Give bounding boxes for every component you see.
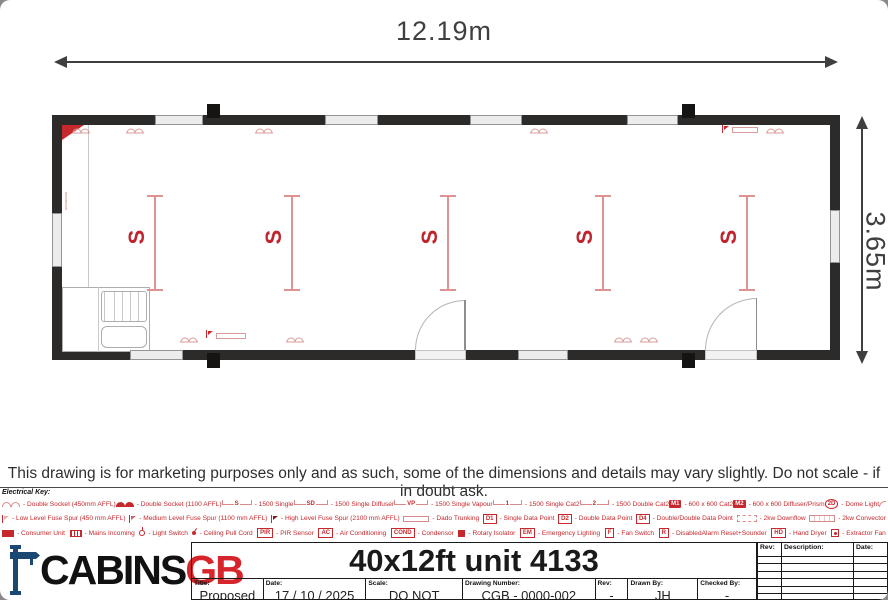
rev-cell — [782, 572, 854, 578]
key-item: S- 1500 Single — [222, 501, 294, 508]
key-item: - Outside Light — [879, 501, 886, 508]
field-rev: Rev:- — [596, 579, 629, 600]
field-date: Date:17 / 10 / 2025 — [264, 579, 367, 600]
key-item: - Medium Level Fuse Spur (1100 mm AFFL) — [129, 515, 267, 523]
drawing-sheet: 12.19m 3.65m SS — [0, 0, 888, 600]
fuse-low-icon — [2, 515, 9, 523]
double-socket-symbol — [640, 335, 658, 343]
field-value: - — [700, 588, 754, 600]
double-socket-symbol — [59, 192, 67, 210]
door-leaf — [756, 298, 758, 350]
fluorescent-light-line — [595, 195, 611, 197]
rev-empty-row — [758, 572, 887, 579]
dado-trunking-symbol — [732, 127, 758, 133]
double-socket-symbol — [614, 335, 632, 343]
key-item-label: - Condensor — [418, 530, 454, 537]
fluorescent-light-label: S — [716, 224, 742, 250]
arrow-down-icon — [856, 351, 868, 364]
revision-table: Rev:Description:Date: — [757, 542, 888, 600]
double-socket-symbol — [126, 126, 144, 134]
rev-empty-row — [758, 557, 887, 564]
key-item: D2- Double Data Point — [558, 514, 632, 524]
sink-drainer — [101, 291, 147, 322]
rev-cell — [758, 572, 782, 578]
field-value: JH — [630, 588, 695, 600]
pull-cord-icon — [192, 531, 196, 535]
window — [52, 213, 62, 267]
rotary-icon — [458, 530, 465, 537]
box-outline-icon: D2 — [558, 514, 572, 524]
rev-cell — [758, 579, 782, 585]
arrow-up-icon — [856, 116, 868, 129]
fluorescent-light-line — [447, 196, 449, 290]
consumer-unit-icon — [2, 530, 14, 537]
fluorescent-light-line — [284, 195, 300, 197]
key-item-label: - Double Socket (450mm AFFL) — [23, 501, 116, 508]
key-item-label: - Fan Switch — [617, 530, 654, 537]
fluorescent-light-line — [147, 289, 163, 291]
key-item-label: - Dado Trunking — [432, 515, 479, 522]
double-socket-symbol — [766, 126, 784, 134]
key-item-label: - Double Socket (1100 AFFL) — [137, 501, 222, 508]
key-item: - Mains Incoming — [70, 530, 135, 537]
module-joint — [207, 104, 220, 118]
key-item-label: - 2kw Downflow — [760, 515, 806, 522]
convector-icon — [809, 515, 835, 522]
window — [325, 115, 378, 125]
key-item-label: - PIR Sensor — [276, 530, 314, 537]
window — [627, 115, 678, 125]
key-item: - Light Switch — [139, 530, 188, 537]
field-label: Checked By: — [700, 580, 754, 587]
mains-icon — [70, 530, 82, 537]
rev-cell — [758, 587, 782, 593]
sink — [101, 326, 147, 348]
width-dimension-line — [57, 61, 835, 63]
key-item-label: - Consumer Unit — [17, 530, 65, 537]
title-block-fields: Title:Proposed LayoutDate:17 / 10 / 2025… — [192, 578, 756, 600]
luminaire-icon: 2 — [580, 501, 609, 507]
window — [155, 115, 203, 125]
module-joint — [682, 353, 695, 368]
key-item: - Double Socket (1100 AFFL) — [116, 501, 222, 508]
key-item-label: - 600 x 600 Cat2 — [684, 501, 733, 508]
key-item: PIR- PIR Sensor — [257, 528, 314, 538]
key-item-label: - Dome Light — [841, 501, 879, 508]
kitchen-worktop-edge — [88, 125, 89, 287]
trunking-icon — [403, 516, 429, 522]
key-item: D4- Double/Double Data Point — [636, 514, 733, 524]
cabinsgb-logo-icon — [10, 545, 40, 595]
key-item: - High Level Fuse Spur (2100 mm AFFL) — [271, 515, 400, 523]
key-item: D1- Single Data Point — [483, 514, 555, 524]
key-item: - Low Level Fuse Spur (450 mm AFFL) — [2, 515, 126, 523]
key-item: R- DisabledAlarm Reset+Sounder — [659, 528, 767, 538]
key-item: AC- Air Conditioning — [318, 528, 386, 538]
fluorescent-light-line — [746, 196, 748, 290]
key-item-label: - Medium Level Fuse Spur (1100 mm AFFL) — [139, 515, 267, 522]
field-drawingnumber: Drawing Number:CGB - 0000-002 — [463, 579, 596, 600]
rev-empty-row — [758, 579, 887, 586]
light-switch-icon — [139, 530, 145, 536]
key-item-label: - Low Level Fuse Spur (450 mm AFFL) — [12, 515, 126, 522]
box-outline-icon: D1 — [483, 514, 497, 524]
key-item: - Consumer Unit — [2, 530, 65, 537]
window — [518, 350, 568, 360]
key-item-label: - Emergency Lighting — [538, 530, 600, 537]
title-block: 40x12ft unit 4133 Title:Proposed LayoutD… — [191, 542, 757, 600]
key-item-label: - Air Conditioning — [336, 530, 386, 537]
double-socket-symbol — [530, 126, 548, 134]
field-title: Title:Proposed Layout — [192, 579, 264, 600]
key-item-label: - DisabledAlarm Reset+Sounder — [672, 530, 767, 537]
field-value: Proposed Layout — [194, 588, 261, 600]
key-item-label: - 1500 Single Vapour — [431, 501, 492, 508]
key-item: - Ceiling Pull Cord — [192, 530, 252, 537]
box-outline-icon: AC — [318, 528, 333, 538]
key-item: - Dado Trunking — [403, 515, 479, 522]
arrow-right-icon — [825, 56, 838, 68]
window — [470, 115, 522, 125]
key-item: HD- Hand Dryer — [771, 528, 826, 538]
key-item: F- Fan Switch — [605, 528, 654, 538]
rev-cell — [854, 557, 886, 563]
fluorescent-light-line — [291, 196, 293, 290]
field-drawnby: Drawn By:JH — [628, 579, 698, 600]
fluorescent-light-line — [739, 195, 755, 197]
extractor-icon — [831, 529, 839, 537]
fluorescent-light-label: S — [572, 224, 598, 250]
window — [130, 350, 183, 360]
field-label: Drawing Number: — [465, 580, 593, 587]
key-item-label: - Ceiling Pull Cord — [199, 530, 252, 537]
electrical-key: Electrical Key: - Double Socket (450mm A… — [0, 487, 888, 542]
door-leaf — [464, 300, 466, 350]
rev-header-date: Date: — [854, 543, 886, 556]
box-outline-icon: EM — [520, 528, 535, 538]
field-value: CGB - 0000-002 — [465, 588, 593, 600]
electrical-key-row-3: - Consumer Unit- Mains Incoming- Light S… — [2, 526, 886, 541]
key-item-label: - Rotary Isolator — [468, 530, 515, 537]
rev-cell — [782, 587, 854, 593]
fluorescent-light-line — [154, 196, 156, 290]
key-item: - Rotary Isolator — [458, 530, 515, 537]
round-icon: 2D — [825, 499, 839, 509]
fuse-spur-symbol — [206, 330, 214, 338]
box-outline-icon: D4 — [636, 514, 650, 524]
box-outline-icon: HD — [771, 528, 786, 538]
door-opening — [415, 350, 466, 360]
arrow-left-icon — [54, 56, 67, 68]
rev-empty-row — [758, 564, 887, 571]
luminaire-icon: 1 — [493, 501, 522, 507]
rev-cell — [782, 579, 854, 585]
key-item-label: - 1500 Single Diffuser — [331, 501, 394, 508]
drawing-title: 40x12ft unit 4133 — [192, 543, 756, 578]
key-item: 1- 1500 Single Cat2 — [493, 501, 580, 508]
box-outline-icon: PIR — [257, 528, 273, 538]
box-outline-icon: R — [659, 528, 669, 538]
rev-header-rev: Rev: — [758, 543, 782, 556]
rev-cell — [758, 564, 782, 570]
key-item-label: - 2kw Convector — [838, 515, 886, 522]
key-item-label: - Single Data Point — [500, 515, 555, 522]
fluorescent-light-line — [440, 289, 456, 291]
module-joint — [682, 104, 695, 118]
double-socket-symbol — [180, 335, 198, 343]
fluorescent-light-label: S — [417, 224, 443, 250]
key-item: 2- 1500 Double Cat2 — [580, 501, 670, 508]
kitchen-unit-divider — [98, 287, 99, 352]
key-item: COND- Condensor — [391, 528, 454, 538]
fuse-med-icon — [129, 515, 136, 523]
field-label: Scale: — [368, 580, 460, 587]
window — [830, 210, 840, 263]
rev-header-description: Description: — [782, 543, 854, 556]
rev-cell — [758, 557, 782, 563]
key-item-label: - 1500 Double Cat2 — [612, 501, 669, 508]
key-item: - Double Socket (450mm AFFL) — [2, 501, 116, 508]
field-value: DO NOT SCALE — [368, 588, 460, 600]
rev-cell — [782, 557, 854, 563]
fluorescent-light-line — [739, 289, 755, 291]
key-item: - Extractor Fan — [831, 529, 886, 537]
box-filled-icon: M1 — [669, 500, 681, 508]
box-outline-icon: COND — [391, 528, 415, 538]
luminaire-icon: VP — [394, 501, 428, 507]
key-item: - 2kw Convector — [809, 515, 886, 522]
dado-trunking-symbol — [216, 333, 246, 339]
key-item-label: - 600 x 600 Diffuser/Prism — [749, 501, 825, 508]
key-item-label: - Double/Double Data Point — [653, 515, 733, 522]
key-item: EM- Emergency Lighting — [520, 528, 600, 538]
rev-empty-row — [758, 594, 887, 600]
rev-cell — [854, 572, 886, 578]
key-item: 2D- Dome Light — [825, 499, 879, 509]
luminaire-icon: S — [222, 501, 252, 507]
module-joint — [207, 353, 220, 368]
key-item-label: - 1500 Single — [255, 501, 294, 508]
fuse-high-icon — [271, 515, 278, 523]
electrical-key-title: Electrical Key: — [2, 489, 50, 496]
key-item: VP- 1500 Single Vapour — [394, 501, 492, 508]
rev-cell — [854, 594, 886, 600]
key-item: - 2kw Downflow — [737, 515, 806, 522]
downflow-icon — [737, 515, 757, 522]
field-checkedby: Checked By:- — [698, 579, 756, 600]
field-label: Drawn By: — [630, 580, 695, 587]
rev-empty-row — [758, 587, 887, 594]
key-item-label: - 1500 Single Cat2 — [525, 501, 580, 508]
key-item: M1- 600 x 600 Cat2 — [669, 500, 733, 508]
key-item-label: - Hand Dryer — [789, 530, 827, 537]
rev-cell — [854, 587, 886, 593]
key-item-label: - Double Data Point — [575, 515, 633, 522]
fluorescent-light-line — [602, 196, 604, 290]
field-label: Title: — [194, 580, 261, 587]
double-socket-1100-icon — [116, 502, 134, 507]
fuse-spur-symbol — [722, 125, 730, 133]
rev-cell — [854, 564, 886, 570]
rev-cell — [782, 564, 854, 570]
double-socket-450-icon — [2, 502, 20, 507]
rev-cell — [758, 594, 782, 600]
width-dimension-label: 12.19m — [0, 16, 888, 47]
field-value: - — [598, 588, 626, 600]
fluorescent-light-line — [284, 289, 300, 291]
key-item-label: - Mains Incoming — [85, 530, 135, 537]
double-socket-symbol — [255, 126, 273, 134]
fluorescent-light-label: S — [124, 224, 150, 250]
height-dimension-label: 3.65m — [860, 212, 888, 274]
box-outline-icon: F — [605, 528, 615, 538]
box-filled-icon: M2 — [733, 500, 745, 508]
double-socket-symbol — [286, 335, 304, 343]
key-item-label: - High Level Fuse Spur (2100 mm AFFL) — [281, 515, 400, 522]
field-label: Rev: — [598, 580, 626, 587]
electrical-key-row-2: - Low Level Fuse Spur (450 mm AFFL)- Med… — [2, 512, 886, 527]
luminaire-icon: SD — [294, 501, 328, 507]
key-item-label: - Light Switch — [148, 530, 188, 537]
key-item-label: - Extractor Fan — [842, 530, 886, 537]
fluorescent-light-line — [147, 195, 163, 197]
logo-cabins: CABINS — [40, 547, 185, 593]
field-scale: Scale:DO NOT SCALE — [366, 579, 463, 600]
door-opening — [705, 350, 757, 360]
outside-light-icon — [879, 501, 886, 507]
field-value: 17 / 10 / 2025 — [266, 588, 364, 600]
fluorescent-light-label: S — [261, 224, 287, 250]
fluorescent-light-line — [440, 195, 456, 197]
fluorescent-light-line — [595, 289, 611, 291]
electrical-key-row-1: - Double Socket (450mm AFFL)- Double Soc… — [2, 497, 886, 512]
double-socket-symbol — [72, 126, 90, 134]
rev-cell — [854, 579, 886, 585]
field-label: Date: — [266, 580, 364, 587]
key-item: SD- 1500 Single Diffuser — [294, 501, 395, 508]
key-item: M2- 600 x 600 Diffuser/Prism — [733, 500, 824, 508]
rev-cell — [782, 594, 854, 600]
